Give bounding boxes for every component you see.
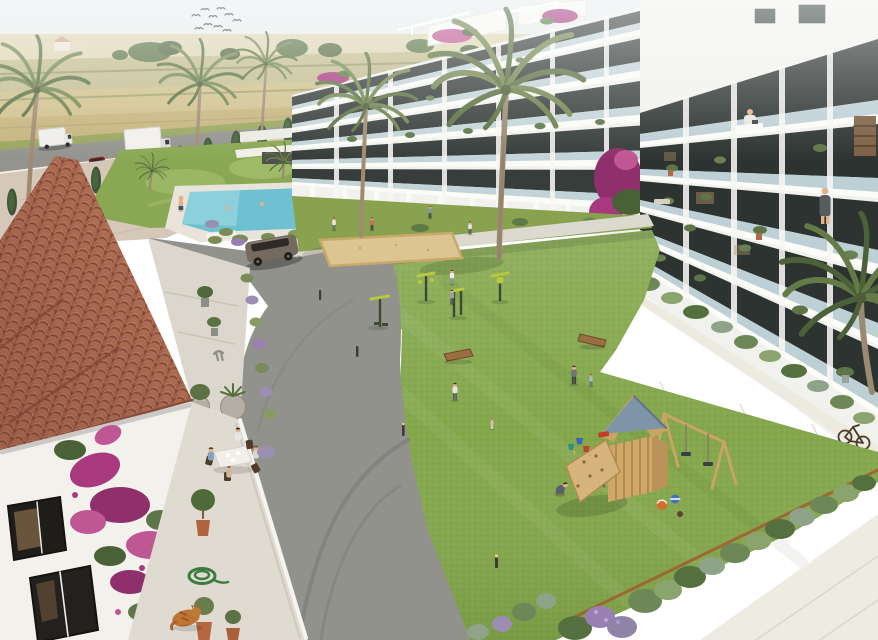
swing-seat (681, 452, 691, 456)
horizon-haze (0, 0, 878, 160)
french-door (30, 566, 98, 640)
balcony-furniture (654, 199, 670, 204)
render-image: Aerial 3D render of a new-build Mediterr… (0, 0, 878, 640)
swing-seat (703, 462, 713, 466)
swimmer (226, 206, 230, 210)
lavender-pot (257, 446, 275, 458)
poolside-person (179, 196, 184, 212)
swimmer (260, 202, 264, 206)
screenshot-root: Aerial 3D render of a new-build Mediterr… (0, 0, 878, 640)
window (8, 497, 66, 560)
